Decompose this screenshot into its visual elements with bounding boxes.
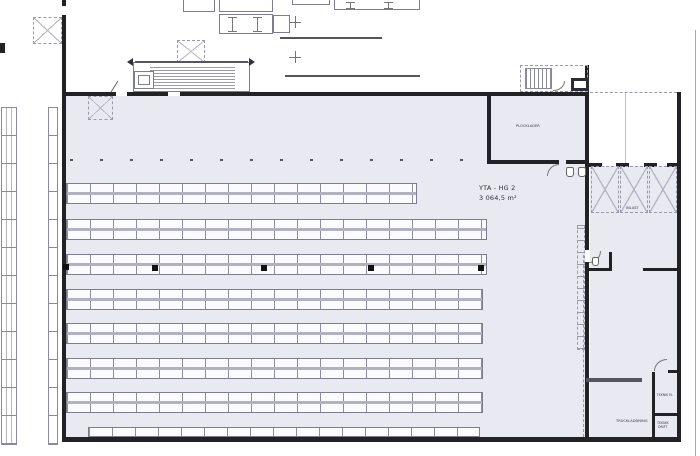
structural-column bbox=[478, 265, 484, 271]
rack-row bbox=[66, 323, 483, 344]
rack-row bbox=[88, 427, 480, 437]
structural-column bbox=[63, 264, 69, 270]
structural-column bbox=[368, 265, 374, 271]
rack-layer bbox=[0, 0, 700, 456]
rack-row bbox=[66, 392, 483, 413]
rack-row bbox=[66, 358, 483, 379]
rack-row bbox=[66, 183, 417, 204]
rack-row bbox=[66, 219, 487, 240]
floor-plan-canvas: PLOCKLAGER YTA - HG 2 3 064,5 m² bbox=[0, 0, 700, 456]
structural-column bbox=[261, 265, 267, 271]
rack-row bbox=[66, 289, 483, 310]
rack-row bbox=[66, 254, 487, 275]
structural-column bbox=[152, 265, 158, 271]
